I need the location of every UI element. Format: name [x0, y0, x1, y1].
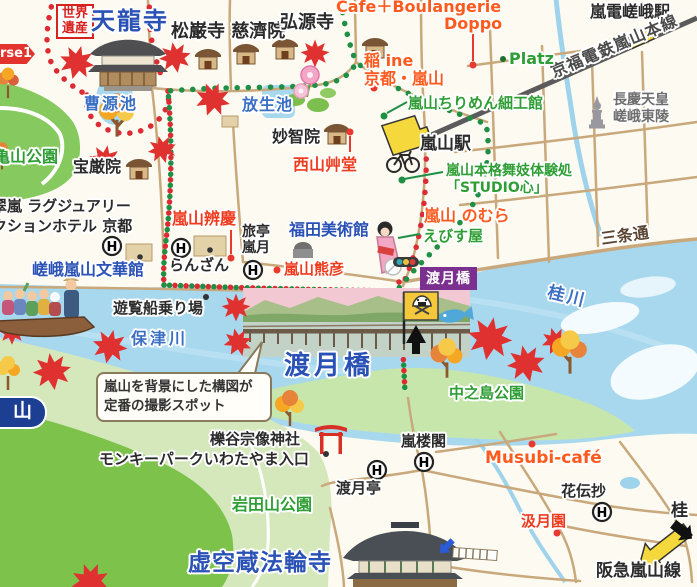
hozu-river-label: 保津川 — [131, 330, 188, 348]
ine-label: 稲 ine — [364, 52, 413, 70]
traffic-light-icon — [393, 257, 419, 267]
hotel-icon: H — [103, 237, 121, 255]
suiran-hotel-label-2: クションホテル 京都 — [0, 218, 132, 235]
chokei-tomb-label-2: 嵯峨東陵 — [613, 109, 669, 125]
photo-spot-callout: 嵐山を背景にした構図が 定番の撮影スポット — [96, 372, 272, 422]
hotel-icon: H — [415, 453, 433, 471]
suiran-hotel-label: 翠嵐 ラグジュアリー — [0, 198, 131, 215]
small-pond — [620, 477, 640, 489]
imperial-tomb-icon — [589, 96, 605, 129]
arashiyama-station-label: 嵐山駅 — [420, 135, 471, 155]
kadensho-label: 花伝抄 — [561, 483, 606, 500]
chirimen-kobo-label: 嵐山ちりめん細工館 — [408, 95, 543, 112]
ichitani-shrine-label: 櫟谷宗像神社 — [210, 431, 300, 448]
platz-label: Platz — [509, 50, 554, 68]
maiko-illustration — [377, 222, 401, 276]
hankyu-line-label: 阪急嵐山線 — [596, 562, 681, 582]
togetsukyo-tag: 渡月橋 — [420, 267, 477, 290]
iwatayama-park-label: 岩田山公園 — [232, 496, 312, 514]
shoganji-jisaiin-label: 松巌寺 慈濟院 — [171, 22, 285, 43]
photo-spot-callout-line2: 定番の撮影スポット — [104, 397, 264, 416]
hotel-icon: H — [172, 239, 190, 257]
arashiyama-tourist-map: H H H H H H 世界遺産 天龍寺 松巌寺 慈濟院 弘源寺 Cafe＋Bo… — [0, 0, 697, 587]
fukuda-museum-building — [293, 242, 313, 258]
kumahiko-label: 嵐山熊彦 — [284, 261, 344, 278]
cafe-doppo-label-2: Doppo — [444, 15, 502, 33]
horinji-temple-label: 虚空蔵法輪寺 — [188, 550, 332, 576]
arashiyama-mountain-capsule: 山 — [0, 396, 47, 429]
hotel-icon: H — [593, 503, 611, 521]
svg-text:H: H — [372, 464, 383, 479]
svg-text:H: H — [597, 506, 608, 521]
kyugetsuen-label: 汲月園 — [521, 513, 566, 530]
svg-text:H: H — [176, 242, 187, 257]
kameyama-park-label: 亀山公園 — [0, 148, 58, 166]
monkey-park-label: モンキーパークいわたやま入口 — [99, 451, 309, 468]
ine-label-2: 京都・嵐山 — [364, 70, 444, 88]
hotel-icon: H — [244, 261, 262, 279]
musubi-cafe-label: Musubi-café — [485, 449, 602, 469]
hotel-icon: H — [368, 461, 386, 479]
horinji-temple-illustration — [343, 522, 467, 587]
ryotei-rangetsu-label: 旅亭 — [242, 224, 270, 240]
hojo-pond-label: 放生池 — [242, 96, 293, 114]
bunkakan-label: 嵯峨嵐山文華館 — [32, 261, 144, 279]
world-heritage-badge: 世界遺産 — [56, 4, 94, 39]
chokei-tomb-label: 長慶天皇 — [613, 92, 669, 108]
togetsutei-label: 渡月亭 — [336, 480, 381, 497]
benkei-label: 嵐山辨慶 — [172, 210, 236, 228]
svg-text:H: H — [107, 240, 118, 255]
tenryuji-temple-label: 天龍寺 — [91, 8, 169, 36]
kameyama-park-green — [0, 82, 80, 202]
maiko-studio-label: 嵐山本格舞妓体験処 — [446, 163, 572, 179]
fukuda-museum-label: 福田美術館 — [289, 221, 369, 239]
sogen-pond-label: 曹源池 — [84, 95, 138, 113]
katsura-direction-label: 桂 — [671, 502, 688, 522]
seizan-sodo-label: 西山艸堂 — [293, 156, 357, 174]
ryotei-rangetsu-label-2: 嵐月 — [242, 240, 270, 256]
nomura-label: 嵐山 のむら — [424, 207, 510, 225]
kogenji-label: 弘源寺 — [280, 13, 334, 34]
hogonin-label: 宝厳院 — [73, 158, 121, 176]
myochiin-label: 妙智院 — [272, 128, 320, 146]
ebisuya-label: えびす屋 — [423, 228, 483, 245]
svg-text:H: H — [248, 264, 259, 279]
rankaku-label: 嵐楼閣 — [401, 433, 446, 450]
maiko-studio-label-2: 「STUDIO心」 — [446, 180, 548, 196]
nakanoshima-park-label: 中之島公園 — [449, 385, 524, 402]
bicycle-icon — [387, 151, 419, 172]
tenryuji-temple-illustration — [88, 40, 168, 91]
ranzan-label: らんざん — [169, 257, 229, 274]
photo-spot-callout-line1: 嵐山を背景にした構図が — [104, 378, 264, 397]
boat-pier-label: 遊覧船乗り場 — [113, 300, 203, 317]
svg-text:H: H — [419, 456, 430, 471]
togetsukyo-bridge-label: 渡月橋 — [284, 352, 374, 382]
